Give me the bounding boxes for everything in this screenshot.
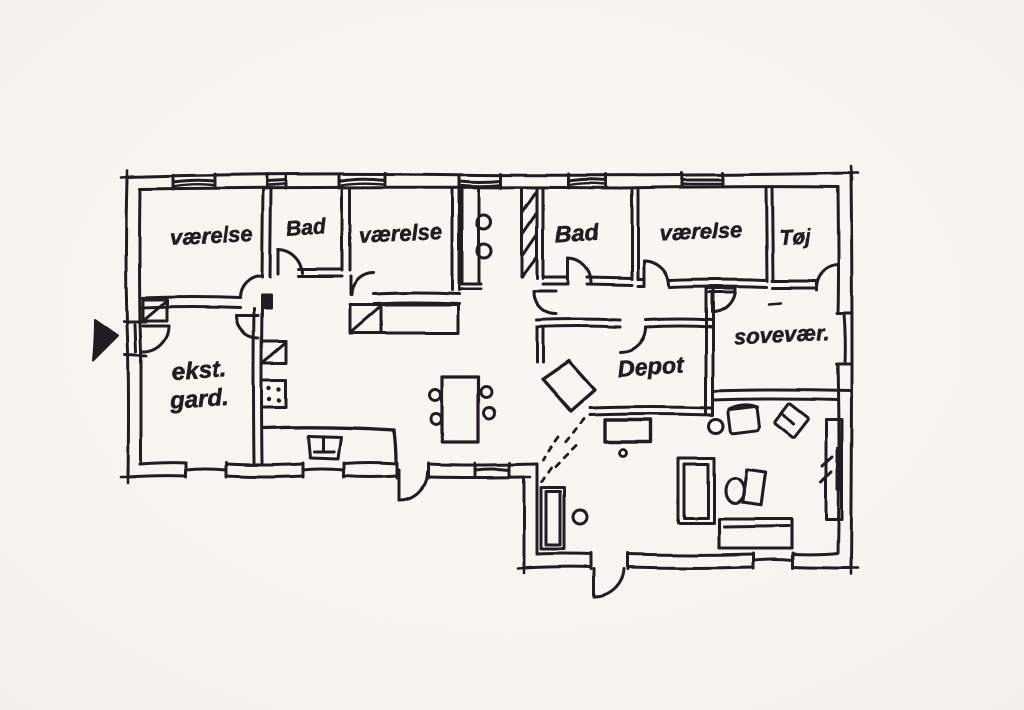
svg-text:sovevær.: sovevær. [733,320,830,350]
svg-text:værelse: værelse [358,219,442,248]
svg-text:Bad: Bad [285,215,327,241]
svg-text:ekst.: ekst. [171,356,227,386]
svg-text:Bad: Bad [554,218,600,247]
svg-text:gard.: gard. [168,384,229,414]
svg-text:Tøj: Tøj [779,225,813,250]
svg-text:værelse: værelse [169,221,253,250]
svg-text:Depot: Depot [617,351,685,382]
svg-text:værelse: værelse [659,218,743,246]
